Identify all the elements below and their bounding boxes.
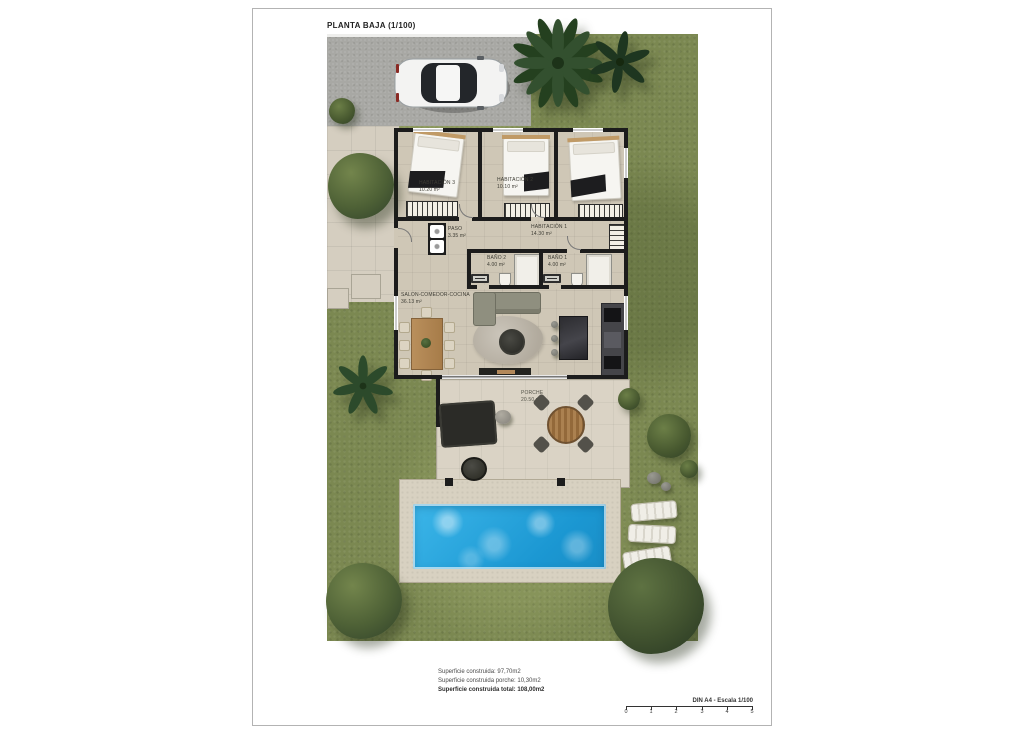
bed-headboard [502,135,550,139]
room-area: 20.50 m² [521,397,543,404]
dining-chair [421,307,432,318]
scale-ticks: 0 1 2 3 4 5 [626,707,753,715]
wall-baths-left [467,249,471,289]
scale-tick: 2 [674,709,677,715]
summary-line-construida: Superficie construida: 97,70m2 [438,668,544,677]
shower-bano2 [514,254,540,288]
wall-salon-bottom-right [567,375,628,379]
palm-plant [329,352,397,420]
window [394,296,398,330]
door-gap-bano1 [549,285,561,289]
window [493,128,523,132]
room-area: 10.20 m² [419,187,455,194]
sofa-chaise [473,292,496,326]
summary-line-total: Superficie construida total: 108,00m2 [438,686,544,695]
bed-hab1 [568,139,621,202]
scale-tick: 4 [725,709,728,715]
stone-pebble [661,482,671,491]
stone-pebble [647,472,661,484]
outdoor-sofa [439,400,498,448]
wall-baths-bottom [467,285,628,289]
sink-bano1 [543,274,561,283]
bar-stool [551,349,558,356]
room-name: BAÑO 1 [548,255,567,262]
wall-baths-top [467,249,628,253]
oven [604,332,621,348]
tree [608,558,704,654]
sliding-glass-door [442,375,567,379]
table-plant [421,338,431,348]
tv-bench-wood [497,370,515,374]
window [573,128,603,132]
dryer [430,240,444,253]
scale-tick: 1 [649,709,652,715]
bed-throw [571,174,607,197]
scale-label: DIN A4 - Escala 1/100 [626,698,753,704]
wall-left [394,128,398,379]
car-roof [436,65,460,101]
swimming-pool [413,504,606,569]
dining-chair [399,358,410,369]
wardrobe-hab1-side [609,224,625,250]
room-label-porche: PORCHE 20.50 m² [521,390,543,403]
driveway-curb [327,34,531,37]
room-area: 4.00 m² [487,262,506,269]
pouf [495,410,511,424]
room-label-paso: PASO 3.35 m² [448,226,466,239]
porch-column [445,478,453,486]
wall-bedrooms-bottom [394,217,628,221]
room-name: PORCHE [521,390,543,397]
dining-chair [399,322,410,333]
room-label-salon: SALON-COMEDOR-COCINA 36.13 m² [401,292,470,305]
bush [647,414,691,458]
dining-chair [444,340,455,351]
room-name: HABITACIÓN 3 [419,180,455,187]
window [413,128,443,132]
page-title: PLANTA BAJA (1/100) [327,21,416,30]
wall-divider-hab3-hab2 [478,128,482,221]
wall-salon-bottom-left [394,375,442,379]
washer [430,225,444,238]
plan-sheet: PLANTA BAJA (1/100) [252,8,772,726]
area-summary: Superficie construida: 97,70m2 Superfici… [438,668,544,695]
coffee-table [499,329,525,355]
outdoor-table [547,406,585,444]
room-area: 4.00 m² [548,262,567,269]
room-label-bano1: BAÑO 1 4.00 m² [548,255,567,268]
car-top-view [391,52,513,116]
wall-divider-hab2-hab1 [554,128,558,221]
bush [618,388,640,410]
dining-chair [444,358,455,369]
wall-baths-divider [539,249,543,289]
room-area: 10.10 m² [497,184,533,191]
scale-tick: 5 [750,709,753,715]
tree [326,563,402,639]
wardrobe-hab3 [406,201,458,217]
porch-column [557,478,565,486]
bush [680,460,698,478]
site-plan: HABITACIÓN 3 10.20 m² HABITACIÓN 2 10.10… [327,34,698,641]
fire-pit [461,457,487,481]
bar-stool [551,335,558,342]
room-name: HABITACIÓN 2 [497,177,533,184]
window [624,296,628,330]
room-area: 36.13 m² [401,299,470,306]
bed-pillow [507,141,545,152]
door-gap-bano2 [477,285,489,289]
room-label-hab1: HABITACIÓN 1 14.30 m² [531,224,567,237]
room-area: 3.35 m² [448,233,466,240]
scale-tick: 0 [624,709,627,715]
sun-lounger [628,524,677,544]
room-label-bano2: BAÑO 2 4.00 m² [487,255,506,268]
room-label-hab3: HABITACIÓN 3 10.20 m² [419,180,455,193]
shower-bano1 [586,254,612,288]
scale-bar: DIN A4 - Escala 1/100 0 1 2 3 4 5 [626,698,753,715]
scale-tick: 3 [700,709,703,715]
dining-chair [444,322,455,333]
room-name: HABITACIÓN 1 [531,224,567,231]
palm-tree [586,28,654,96]
window [624,148,628,178]
summary-line-porche: Superficie construida porche: 10,30m2 [438,677,544,686]
bush [329,98,355,124]
stepping-stone [327,288,349,309]
sun-lounger [630,500,677,522]
dining-chair [399,340,410,351]
room-label-hab2: HABITACIÓN 2 10.10 m² [497,177,533,190]
room-name: BAÑO 2 [487,255,506,262]
room-area: 14.30 m² [531,231,567,238]
fridge [604,308,621,322]
screenshot-canvas: PLANTA BAJA (1/100) [0,0,1024,732]
kitchen-island [559,316,588,360]
bar-stool [551,321,558,328]
bed-pillow [573,142,616,155]
sink-bano2 [471,274,489,283]
stepping-stone [351,274,381,299]
kitchen-sink [604,356,621,369]
room-name: SALON-COMEDOR-COCINA [401,292,470,299]
